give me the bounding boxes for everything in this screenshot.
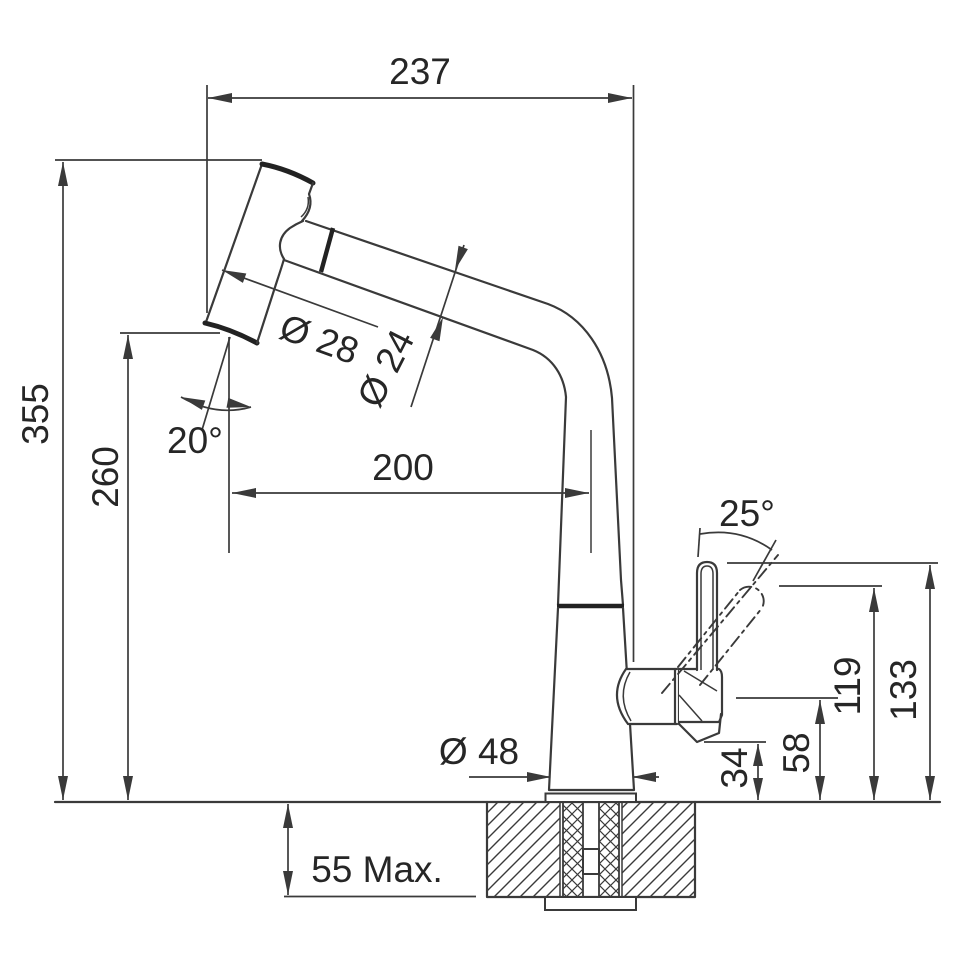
arrowhead bbox=[815, 776, 825, 800]
dim-label-valve-height: 58 bbox=[776, 732, 817, 773]
faucet-dimension-drawing: 237 355 260 20° bbox=[0, 0, 960, 960]
spray-head-left-edge bbox=[206, 164, 262, 322]
spray-head-top-face bbox=[262, 164, 313, 183]
arrowhead bbox=[869, 776, 879, 800]
angle-20-axis-line bbox=[202, 337, 230, 430]
counter-hatch-right bbox=[622, 803, 694, 896]
dimensions: 237 355 260 20° bbox=[15, 51, 938, 895]
dim-237-extension-lines bbox=[207, 85, 634, 662]
valve-cap-fill bbox=[679, 669, 722, 722]
dim-label-outlet-height: 260 bbox=[85, 446, 126, 508]
arrowhead bbox=[925, 565, 935, 589]
arrowhead bbox=[232, 488, 256, 498]
dim-spout-reach: 237 bbox=[207, 51, 634, 662]
hose-channel bbox=[583, 849, 599, 874]
arrowhead bbox=[123, 335, 133, 359]
arrowhead bbox=[123, 776, 133, 800]
arrowhead bbox=[527, 772, 551, 782]
arrowhead bbox=[208, 93, 232, 103]
arrowhead bbox=[222, 270, 246, 283]
angle-25-vertical-tick bbox=[698, 528, 700, 557]
arrowhead bbox=[58, 776, 68, 800]
arrowhead bbox=[565, 488, 589, 498]
dim-label-overall-height: 355 bbox=[15, 383, 56, 445]
arrowhead bbox=[430, 317, 443, 341]
base-flange bbox=[546, 794, 637, 803]
angle-25-arc bbox=[700, 532, 772, 550]
arrowhead bbox=[283, 871, 293, 895]
arrowhead bbox=[608, 93, 632, 103]
spout-joint-ring bbox=[321, 228, 333, 272]
head-socket-curve bbox=[280, 221, 303, 259]
spout-lower-edge bbox=[284, 260, 566, 605]
lever-handle-fill bbox=[697, 562, 717, 672]
dim-body-height: 34 bbox=[704, 742, 766, 800]
arrowhead bbox=[815, 700, 825, 724]
dim-horizontal-reach: 200 bbox=[232, 447, 589, 498]
arrowhead bbox=[869, 588, 879, 612]
dim-label-lever-angle: 25° bbox=[719, 493, 775, 534]
angle-25-axis-line bbox=[753, 540, 776, 581]
threaded-shank-right bbox=[599, 802, 619, 897]
faucet-body bbox=[205, 164, 778, 802]
spout-upper-edge bbox=[306, 221, 623, 605]
dim-label-horizontal-reach: 200 bbox=[372, 447, 434, 488]
dim-label-head-angle: 20° bbox=[167, 420, 223, 461]
arrowhead bbox=[227, 398, 252, 408]
dim-label-lever-height: 133 bbox=[883, 659, 924, 721]
dim-label-body-height: 34 bbox=[714, 747, 755, 788]
threaded-shank-left bbox=[563, 802, 583, 897]
arrowhead bbox=[58, 162, 68, 186]
counter-hatch-left bbox=[488, 803, 560, 896]
dim-overall-height: 355 bbox=[15, 160, 262, 800]
dim-counter-thickness: 55 Max. bbox=[283, 804, 443, 895]
dim-label-base-diameter: Ø 48 bbox=[439, 731, 519, 772]
valve-barrel-fill bbox=[617, 669, 677, 724]
drawing-canvas: 237 355 260 20° bbox=[0, 0, 960, 960]
arrowhead bbox=[632, 772, 656, 782]
mounting-nut bbox=[545, 897, 636, 910]
dim-head-angle: 20° bbox=[167, 337, 251, 553]
arrowhead bbox=[283, 804, 293, 828]
arrowhead bbox=[925, 776, 935, 800]
arrowhead bbox=[181, 397, 205, 410]
dim-label-spout-reach: 237 bbox=[389, 51, 451, 92]
arrowhead bbox=[455, 246, 468, 270]
dim-label-counter-thickness: 55 Max. bbox=[311, 849, 443, 890]
dim-label-lever-tilted-height: 119 bbox=[827, 657, 868, 716]
